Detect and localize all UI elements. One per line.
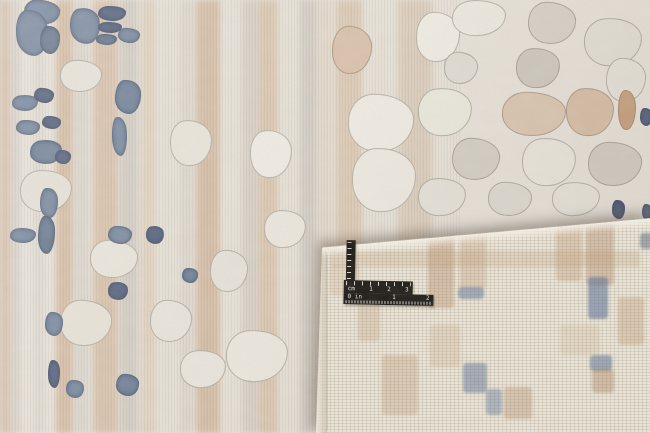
ruler-vertical-ticks [347,242,352,281]
back-showthrough-patch [382,355,418,415]
ruler-vertical-arm [346,240,356,282]
ruler-cm-label: 1 [369,286,373,294]
ruler-inch-label: 2 [426,295,430,302]
back-showthrough-patch [486,389,502,415]
back-showthrough-patch [463,363,487,393]
back-showthrough-patch [618,297,644,345]
selvedge-edge [313,249,328,433]
ruler-cm-label: 2 [387,286,391,294]
back-showthrough-patch [588,277,608,319]
back-showthrough-patch [640,233,650,249]
rug-back-weave [310,205,650,433]
back-showthrough-patch [430,325,460,367]
back-showthrough-patch [592,369,614,393]
ruler-inch-ticks [345,300,431,305]
rug-closeup-photo: cm123 0 in12 [0,0,650,433]
ruler-inch-scale: 0 in12 [343,293,433,306]
scale-ruler: cm123 0 in12 [341,240,438,308]
back-showthrough-patch [560,325,600,355]
back-showthrough-patch [458,287,484,299]
ruler-cm-label: 3 [405,286,409,294]
ruler-cm-label: cm [348,285,355,293]
back-showthrough-patch [504,387,532,419]
rug-folded-corner [0,0,650,433]
